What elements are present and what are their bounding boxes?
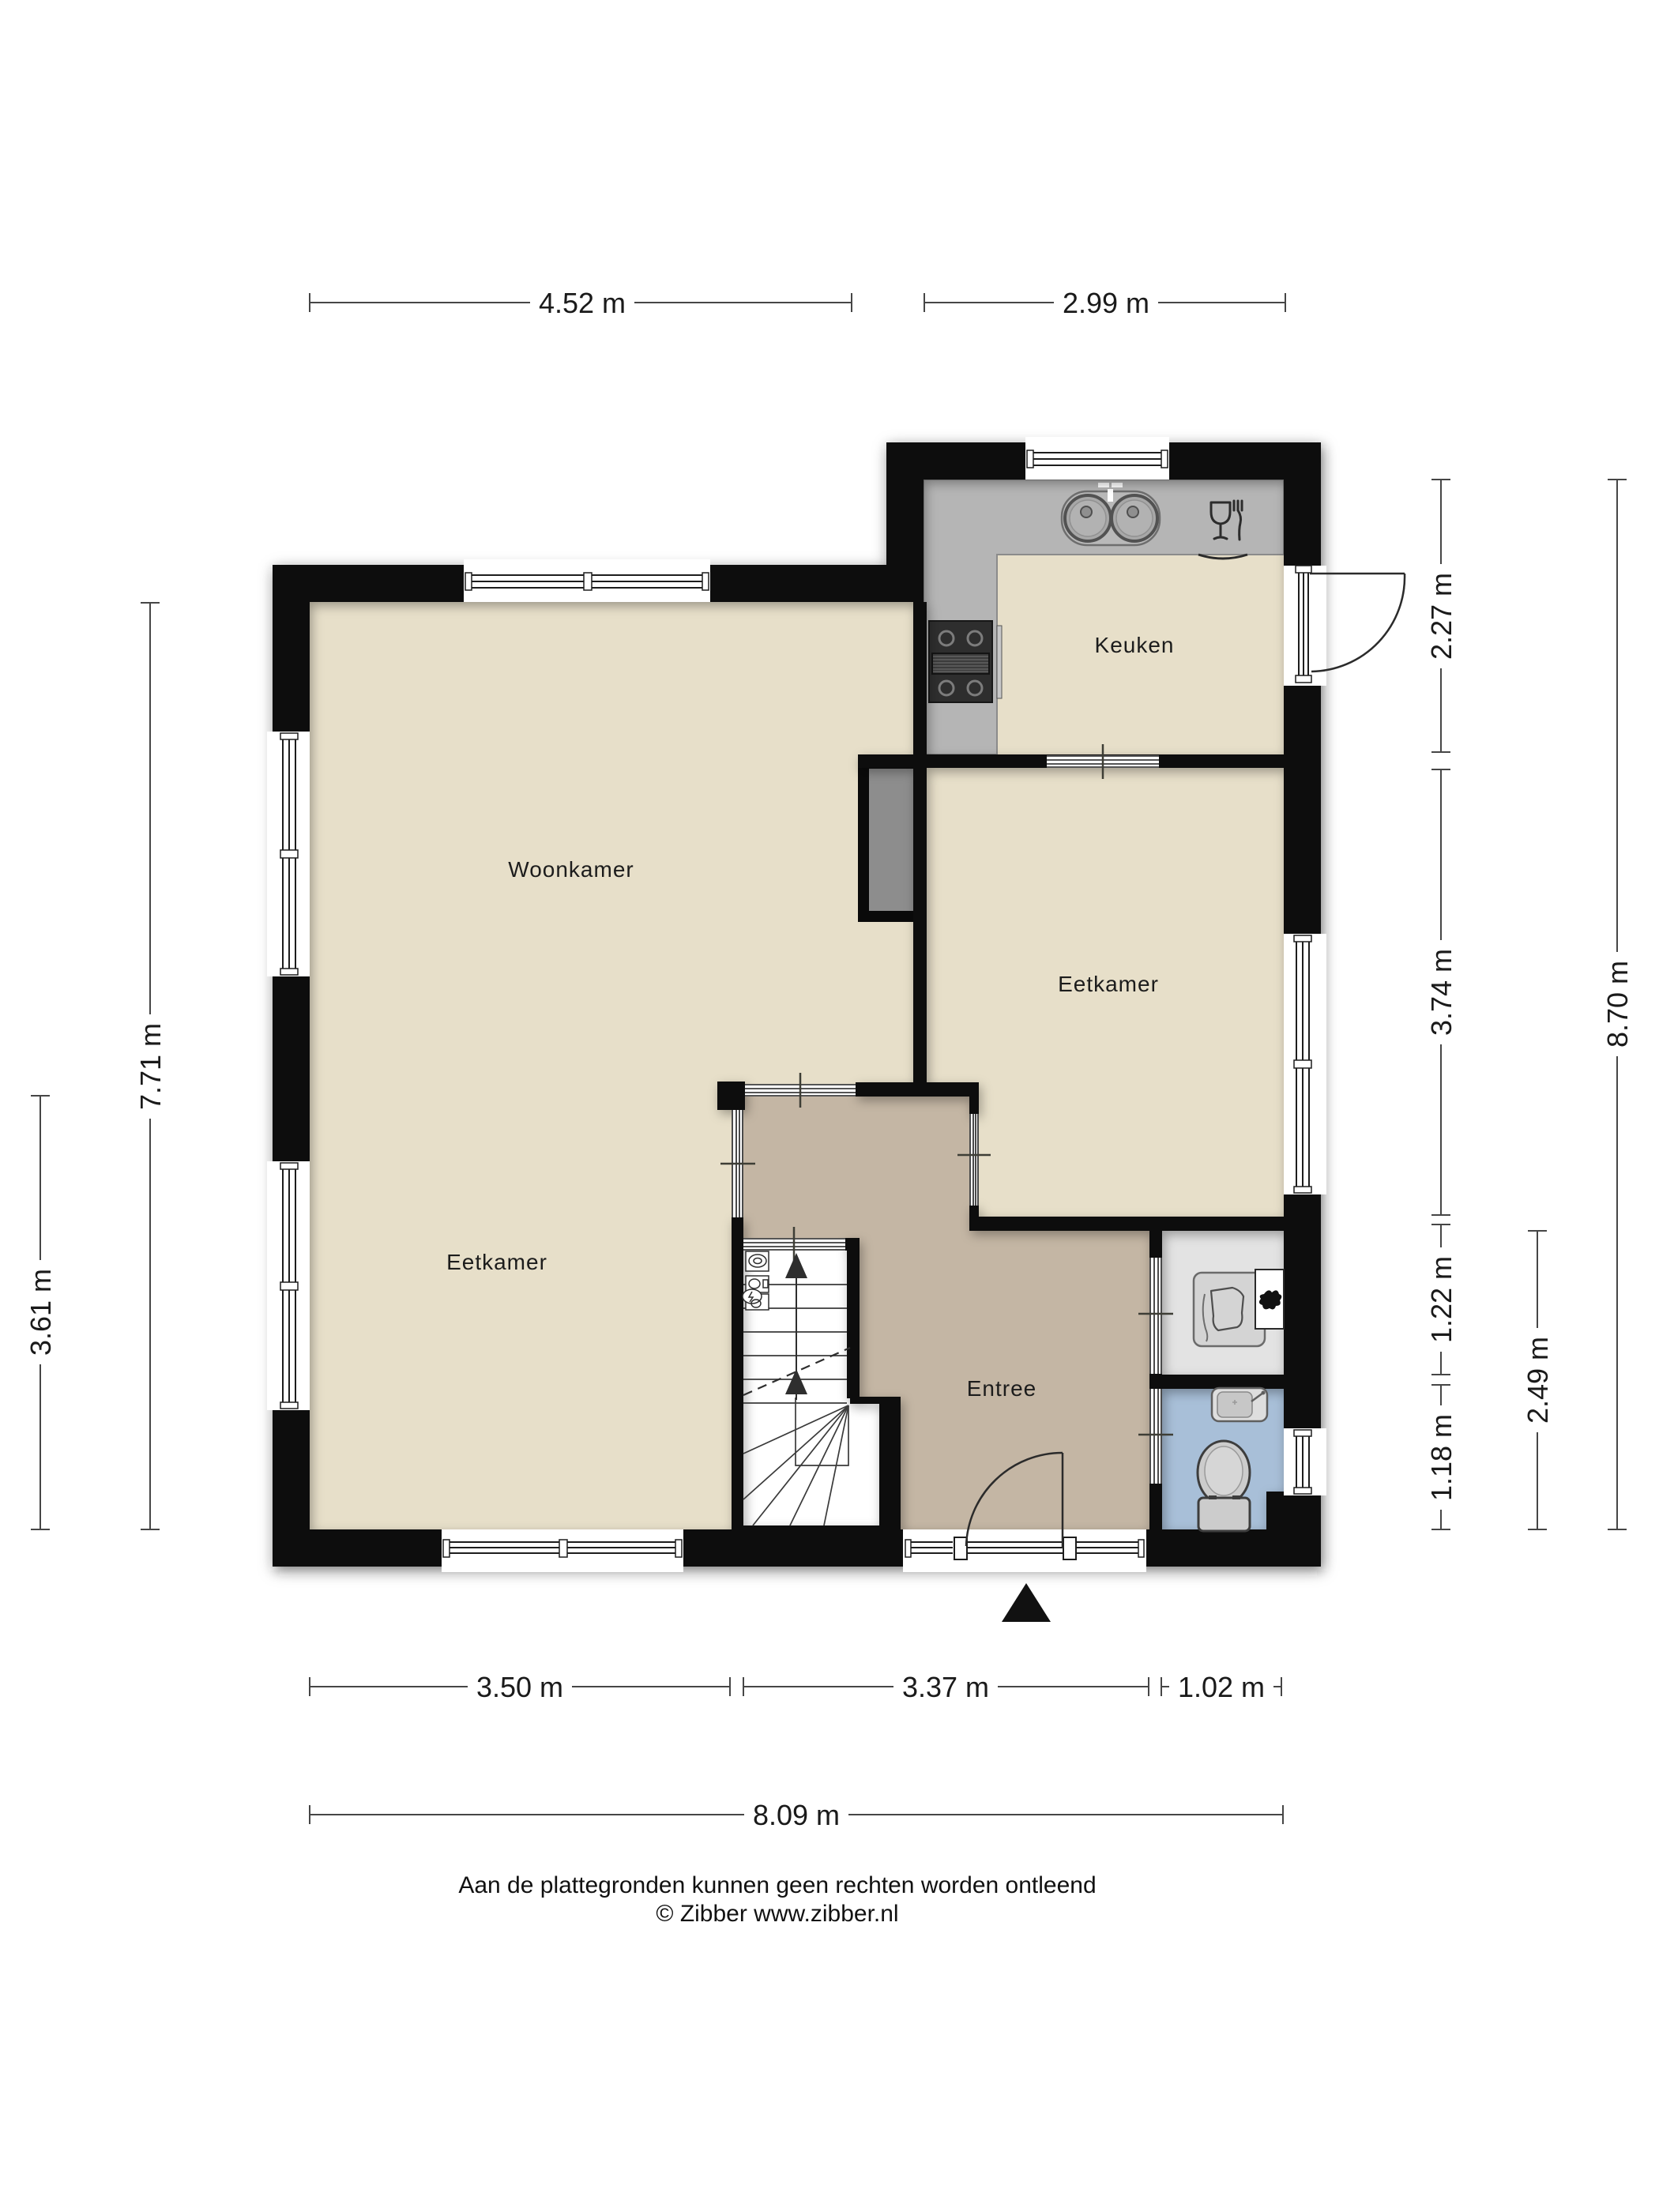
svg-text:7.71 m: 7.71 m	[134, 1023, 167, 1110]
svg-text:3.61 m: 3.61 m	[24, 1269, 57, 1356]
svg-text:3.74 m: 3.74 m	[1425, 949, 1458, 1036]
svg-text:Eetkamer: Eetkamer	[446, 1250, 547, 1274]
svg-text:3.37 m: 3.37 m	[902, 1671, 989, 1703]
svg-text:Entree: Entree	[967, 1376, 1037, 1401]
svg-text:Aan de plattegronden kunnen ge: Aan de plattegronden kunnen geen rechten…	[458, 1872, 1096, 1898]
svg-text:2.99 m: 2.99 m	[1063, 287, 1149, 319]
svg-text:1.18 m: 1.18 m	[1425, 1414, 1458, 1501]
svg-text:8.70 m: 8.70 m	[1601, 961, 1634, 1048]
svg-text:4.52 m: 4.52 m	[539, 287, 626, 319]
svg-text:2.49 m: 2.49 m	[1522, 1337, 1554, 1424]
svg-text:Woonkamer: Woonkamer	[508, 857, 634, 882]
svg-text:Keuken: Keuken	[1095, 633, 1175, 657]
svg-text:1.02 m: 1.02 m	[1178, 1671, 1265, 1703]
svg-text:3.50 m: 3.50 m	[476, 1671, 563, 1703]
svg-text:2.27 m: 2.27 m	[1425, 573, 1458, 660]
svg-text:© Zibber www.zibber.nl: © Zibber www.zibber.nl	[656, 1901, 898, 1927]
svg-text:1.22 m: 1.22 m	[1425, 1256, 1458, 1343]
svg-text:8.09 m: 8.09 m	[753, 1799, 840, 1831]
svg-text:Eetkamer: Eetkamer	[1058, 972, 1159, 996]
